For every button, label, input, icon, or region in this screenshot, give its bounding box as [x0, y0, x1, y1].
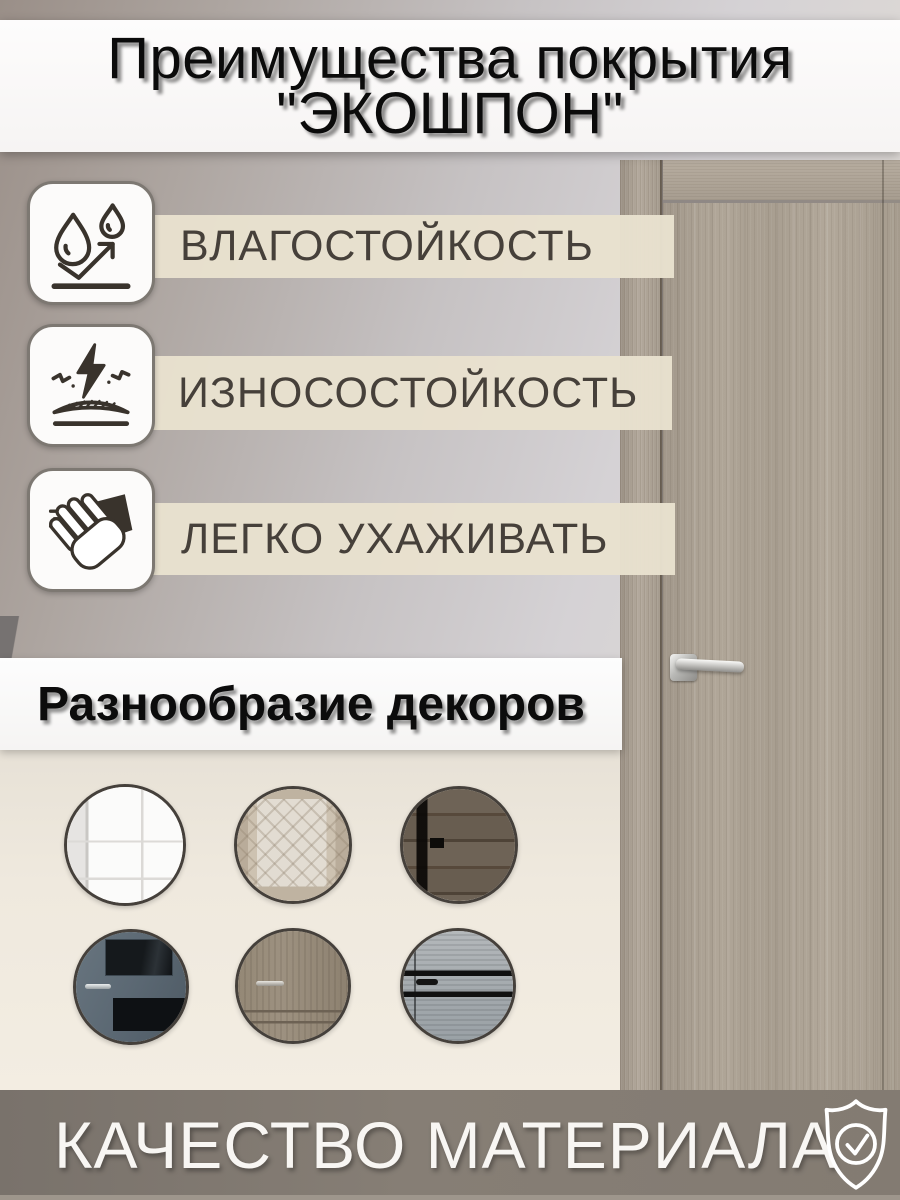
decor-circle-white-classic-door	[64, 784, 186, 906]
water-drops-icon	[27, 181, 155, 305]
impact-resistance-icon	[27, 324, 155, 447]
promo-poster: Преимущества покрытия "ЭКОШПОН" ВЛАГОСТО…	[0, 0, 900, 1200]
door-handle	[416, 979, 438, 985]
feature-row-care: ЛЕГКО УХАЖИВАТЬ	[128, 503, 675, 575]
hand-wipe-icon	[27, 468, 155, 592]
glass-insert	[105, 939, 173, 976]
decor-circle-gray-wood-classic-door	[235, 928, 351, 1044]
wall-corner-shadow	[0, 616, 26, 660]
door-handle	[85, 984, 111, 990]
footer-banner: КАЧЕСТВО МАТЕРИАЛА	[0, 1090, 900, 1200]
feature-label: ЛЕГКО УХАЖИВАТЬ	[181, 515, 609, 564]
shield-check-icon	[818, 1093, 894, 1195]
door-handle	[430, 838, 445, 848]
door-jamb	[620, 160, 662, 1090]
footer-bottom-edge	[0, 1195, 900, 1200]
decors-banner: Разнообразие декоров	[0, 658, 622, 750]
footer-label: КАЧЕСТВО МАТЕРИАЛА	[54, 1107, 837, 1183]
title-banner: Преимущества покрытия "ЭКОШПОН"	[0, 20, 900, 152]
feature-label: ВЛАГОСТОЙКОСТЬ	[180, 222, 594, 271]
feature-row-wear: ИЗНОСОСТОЙКОСТЬ	[128, 356, 672, 430]
decor-circle-light-gray-wood-door-black-inserts	[400, 928, 516, 1044]
decor-circle-oak-door-with-patterned-glass	[234, 786, 352, 904]
door-handle	[256, 981, 285, 987]
decors-title: Разнообразие декоров	[37, 677, 585, 732]
door-edge-groove	[882, 160, 884, 1090]
page-title-line2: "ЭКОШПОН"	[276, 86, 623, 141]
door-photo	[620, 160, 900, 1090]
door-leaf	[663, 203, 900, 1090]
door-top-rail	[663, 160, 900, 200]
decor-circle-blue-gray-door-with-dark-glass	[73, 929, 189, 1045]
feature-label: ИЗНОСОСТОЙКОСТЬ	[178, 369, 638, 418]
page-title-line1: Преимущества покрытия	[107, 31, 792, 86]
glass-insert	[113, 998, 186, 1031]
decor-circle-dark-rustic-wood-door	[400, 786, 518, 904]
feature-row-moisture: ВЛАГОСТОЙКОСТЬ	[128, 215, 674, 278]
